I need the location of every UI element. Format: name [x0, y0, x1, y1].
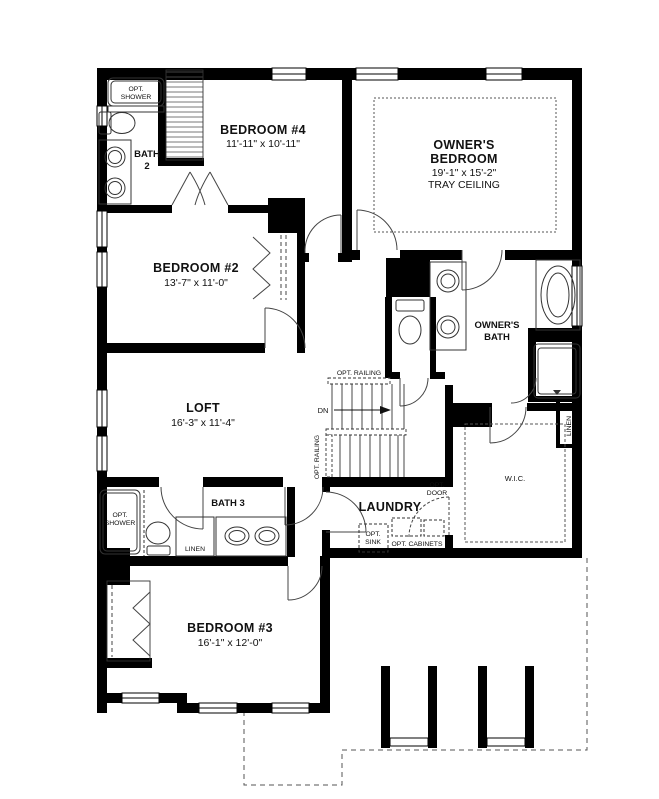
toilet: [146, 522, 170, 555]
walls: [97, 68, 582, 713]
owners-bedroom-door: [357, 210, 397, 250]
laundry-label: LAUNDRY: [359, 500, 422, 514]
bath3-vanity: [216, 517, 286, 556]
window: [486, 68, 522, 80]
svg-text:11'-11" x 10'-11": 11'-11" x 10'-11": [226, 138, 300, 150]
svg-text:BEDROOM #3: BEDROOM #3: [187, 621, 273, 635]
svg-text:BATH: BATH: [484, 332, 510, 343]
bath2-label: BATH 2: [134, 149, 160, 172]
linen-bath3-label: LINEN: [185, 546, 205, 553]
svg-text:TRAY CEILING: TRAY CEILING: [428, 179, 500, 191]
svg-text:BATH 3: BATH 3: [211, 498, 245, 509]
opt-door-label: OPT. DOOR: [427, 482, 447, 497]
optional-railing-top: [328, 378, 390, 384]
floor-plan: BATH 2 OPT. SHOWER BEDROOM #4 11'-11" x …: [0, 0, 659, 799]
openings-below: [381, 666, 534, 748]
svg-text:DOOR: DOOR: [427, 490, 447, 497]
svg-text:SINK: SINK: [365, 539, 381, 546]
bath3-label: BATH 3: [211, 498, 245, 509]
svg-text:OPT.: OPT.: [365, 531, 380, 538]
window: [97, 436, 107, 471]
floor-plan-page: BATH 2 OPT. SHOWER BEDROOM #4 11'-11" x …: [0, 0, 659, 799]
bedroom2-label: BEDROOM #2 13'-7" x 11'-0": [153, 261, 239, 289]
svg-text:LINEN: LINEN: [185, 546, 205, 553]
window: [272, 703, 309, 713]
svg-text:DN: DN: [318, 406, 329, 415]
bath2-double-doors: [172, 172, 228, 205]
opt-shower-top-label: OPT. SHOWER: [121, 86, 152, 101]
svg-text:OWNER'S: OWNER'S: [433, 138, 494, 152]
svg-text:OPT. CABINETS: OPT. CABINETS: [392, 541, 443, 548]
svg-text:19'-1" x 15'-2": 19'-1" x 15'-2": [432, 167, 497, 179]
bedroom3-door: [288, 566, 322, 600]
owners-bath-door: [462, 250, 502, 290]
svg-text:LAUNDRY: LAUNDRY: [359, 500, 422, 514]
owners-bath-label: OWNER'S BATH: [474, 320, 519, 343]
bedroom3-closet: [107, 581, 150, 661]
optional-sink: [359, 524, 388, 552]
opt-railing-top-label: OPT. RAILING: [337, 370, 381, 377]
svg-text:OPT. RAILING: OPT. RAILING: [337, 370, 381, 377]
wic-label: W.I.C.: [505, 474, 525, 483]
bath3-door: [161, 487, 203, 529]
bedroom4-door: [305, 215, 341, 253]
linen-owners-label: LINEN: [566, 416, 573, 436]
svg-text:LOFT: LOFT: [186, 401, 220, 415]
bedroom2-closet: [253, 235, 286, 300]
opt-sink-label: OPT. SINK: [365, 531, 381, 546]
window: [97, 252, 107, 287]
floor-below-outline: [244, 558, 587, 785]
window: [122, 693, 159, 703]
svg-text:SHOWER: SHOWER: [105, 520, 136, 527]
wic-shelving-outline: [465, 424, 565, 542]
bedroom4-label: BEDROOM #4 11'-11" x 10'-11": [220, 123, 306, 150]
down-label: DN: [318, 406, 329, 415]
svg-text:2: 2: [144, 161, 149, 172]
svg-text:OPT. RAILING: OPT. RAILING: [314, 435, 321, 479]
opening-below-jamb: [478, 666, 534, 748]
loft-label: LOFT 16'-3" x 11'-4": [171, 401, 235, 429]
staircase: [326, 378, 406, 477]
svg-text:BATH: BATH: [134, 149, 160, 160]
window: [199, 703, 237, 713]
svg-text:BEDROOM: BEDROOM: [430, 152, 497, 166]
svg-text:OPT.: OPT.: [429, 482, 444, 489]
opt-shower-bottom-label: OPT. SHOWER: [105, 512, 136, 527]
optional-cabinets: [392, 518, 444, 536]
wic-door: [490, 407, 526, 443]
svg-text:BEDROOM #4: BEDROOM #4: [220, 123, 306, 137]
svg-text:16'-1" x 12'-0": 16'-1" x 12'-0": [198, 637, 263, 649]
opt-cabinets-label: OPT. CABINETS: [392, 541, 443, 548]
window: [97, 211, 107, 247]
svg-text:16'-3" x 11'-4": 16'-3" x 11'-4": [171, 417, 235, 429]
svg-text:13'-7" x 11'-0": 13'-7" x 11'-0": [164, 277, 228, 289]
svg-text:SHOWER: SHOWER: [121, 94, 152, 101]
bedroom3-label: BEDROOM #3 16'-1" x 12'-0": [187, 621, 273, 649]
mid-landing-railing: [326, 429, 406, 435]
down-arrow: [334, 406, 391, 414]
window: [272, 68, 306, 80]
svg-text:BEDROOM #2: BEDROOM #2: [153, 261, 239, 275]
bedroom4-closet: [166, 70, 203, 160]
svg-text:W.I.C.: W.I.C.: [505, 474, 525, 483]
window: [356, 68, 398, 80]
window: [97, 390, 107, 427]
opening-below-jamb: [381, 666, 437, 748]
svg-text:OPT.: OPT.: [128, 86, 143, 93]
optional-railing-left: [326, 435, 332, 477]
svg-text:OWNER'S: OWNER'S: [474, 320, 519, 331]
owners-bedroom-label: OWNER'S BEDROOM 19'-1" x 15'-2" TRAY CEI…: [428, 138, 500, 191]
opt-railing-left-label: OPT. RAILING: [314, 435, 321, 479]
lower-flight-treads: [340, 435, 398, 477]
svg-text:LINEN: LINEN: [566, 416, 573, 436]
svg-text:OPT.: OPT.: [112, 512, 127, 519]
toilet: [396, 300, 424, 344]
